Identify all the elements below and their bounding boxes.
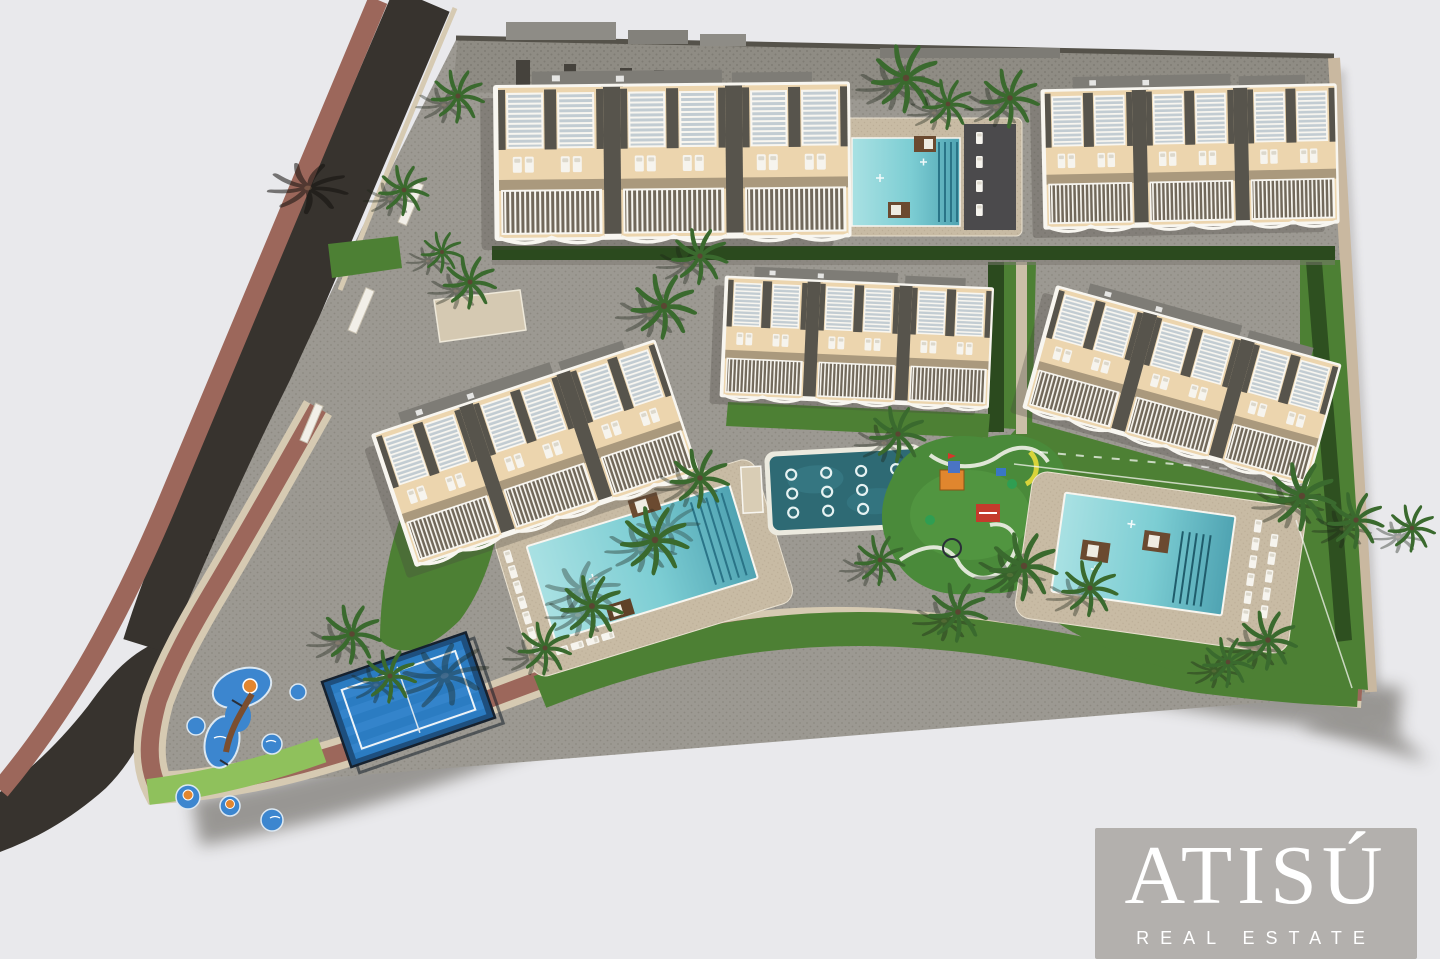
brand-logo: ATISÚ REAL ESTATE — [1095, 828, 1417, 959]
building-block-c — [709, 265, 994, 416]
brand-title: ATISÚ — [1124, 830, 1387, 922]
building-block-a — [480, 68, 852, 250]
dark-deck — [964, 124, 1016, 230]
brand-tagline: REAL ESTATE — [1136, 928, 1376, 949]
pergola — [741, 466, 763, 513]
site-plan-render: ATISÚ REAL ESTATE — [0, 0, 1440, 959]
roof-structure — [506, 22, 616, 40]
masterplan-canvas — [0, 0, 1440, 959]
pool-top — [836, 118, 1022, 236]
building-block-b — [1029, 71, 1339, 238]
